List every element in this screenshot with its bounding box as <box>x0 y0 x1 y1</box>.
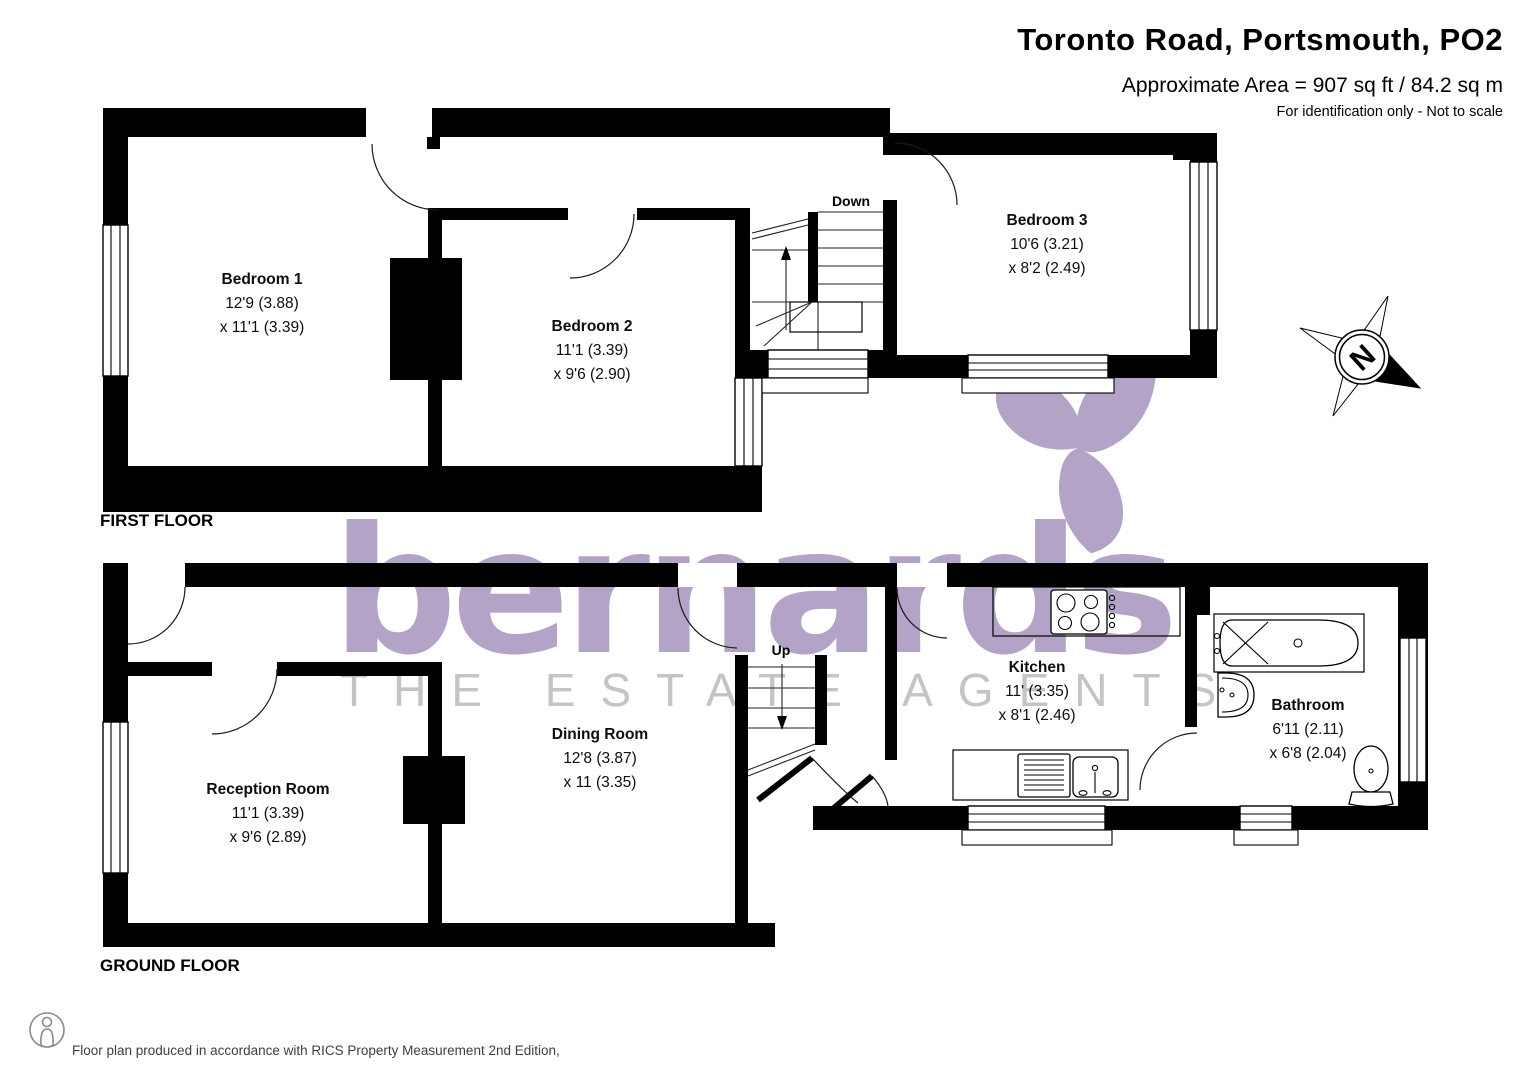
gf-chimney-breast <box>403 756 465 824</box>
ff-bed3-left-wall <box>883 200 897 375</box>
footer-disclaimer: Floor plan produced in accordance with R… <box>72 1005 690 1080</box>
gf-bottom-wall <box>103 923 775 947</box>
floorplan-page: bernards THE ESTATE AGENTS <box>0 0 1527 1080</box>
gf-window-bath-right <box>1400 638 1426 782</box>
ff-landing-wall-b <box>637 208 748 220</box>
gf-bath-bottom-wall <box>1197 806 1428 830</box>
room-label-bedroom-1: Bedroom 1 12'9 (3.88) x 11'1 (3.39) <box>220 268 305 340</box>
ff-bed1-door-gap <box>366 108 432 137</box>
hob-icon <box>1051 590 1115 634</box>
toilet-icon <box>1349 746 1393 807</box>
ff-window-bed3-bottom <box>962 355 1114 393</box>
gf-bath-stub <box>1197 587 1210 615</box>
gf-stair-right-wall <box>815 655 827 745</box>
ff-window-stairbay <box>762 350 868 393</box>
ff-window-bed3-right <box>1190 162 1217 330</box>
room-label-dining-room: Dining Room 12'8 (3.87) x 11 (3.35) <box>552 723 648 795</box>
gf-kitchen-left-wall <box>885 587 897 760</box>
ff-bed1-door-arc <box>372 144 438 210</box>
room-label-bathroom: Bathroom 6'11 (2.11) x 6'8 (2.04) <box>1269 694 1346 766</box>
ff-bed1-door-stub <box>427 137 440 149</box>
sink-icon <box>1018 754 1118 797</box>
ff-bed2-door-arc <box>570 214 634 278</box>
approximate-area: Approximate Area = 907 sq ft / 84.2 sq m <box>1122 74 1503 98</box>
basin-icon <box>1218 673 1254 717</box>
room-label-kitchen: Kitchen 11' (3.35) x 8'1 (2.46) <box>998 656 1075 728</box>
watermark: bernards THE ESTATE AGENTS <box>332 348 1241 716</box>
gf-window-left <box>103 722 128 873</box>
ff-chimney-breast <box>390 258 462 380</box>
floorplan-canvas: bernards THE ESTATE AGENTS <box>0 0 1527 1080</box>
room-label-reception-room: Reception Room 11'1 (3.39) x 9'6 (2.89) <box>206 778 329 850</box>
footer-line-1: Floor plan produced in accordance with R… <box>72 1042 690 1061</box>
ff-top-wall <box>103 108 890 137</box>
ff-staircase <box>752 212 883 350</box>
room-label-bedroom-3: Bedroom 3 10'6 (3.21) x 8'2 (2.49) <box>1007 209 1088 281</box>
gf-dining-door-gap <box>678 563 737 587</box>
stairs-down-label: Down <box>832 193 870 209</box>
gf-window-bath-bottom <box>1234 806 1298 845</box>
gf-front-door-arc <box>128 587 185 644</box>
gf-kitchen-bath-wall <box>1185 587 1197 727</box>
gf-window-kitchen-bottom <box>962 806 1112 845</box>
ff-window-side <box>735 378 762 466</box>
ff-landing-wall-a <box>428 208 568 220</box>
page-title: Toronto Road, Portsmouth, PO2 <box>1017 22 1503 58</box>
ground-floor-label: GROUND FLOOR <box>100 956 240 976</box>
stairs-up-label: Up <box>772 642 791 658</box>
gf-front-door-gap <box>128 563 185 587</box>
ff-bottom-wall <box>103 466 762 512</box>
nichecom-person-icon <box>30 1013 64 1047</box>
ff-stair-arrow <box>781 246 791 260</box>
identification-disclaimer: For identification only - Not to scale <box>1277 104 1503 120</box>
gf-hall-wall-a <box>128 662 212 676</box>
gf-hall-wall-b <box>277 662 428 676</box>
ff-window-left <box>103 225 128 376</box>
first-floor-label: FIRST FLOOR <box>100 511 213 531</box>
gf-dining-right-wall <box>735 655 748 923</box>
compass-icon: N <box>1300 296 1420 416</box>
ff-bed2-stair-wall <box>735 208 750 375</box>
gf-bathroom-door-arc <box>1140 733 1197 790</box>
gf-kitchen-door-gap <box>897 563 947 587</box>
gf-reception-door-arc <box>212 669 277 734</box>
gf-top-wall <box>103 563 1428 587</box>
room-label-bedroom-2: Bedroom 2 11'1 (3.39) x 9'6 (2.90) <box>552 315 633 387</box>
bathtub-icon <box>1214 614 1364 672</box>
ff-bed3-top-wall <box>883 133 1192 155</box>
